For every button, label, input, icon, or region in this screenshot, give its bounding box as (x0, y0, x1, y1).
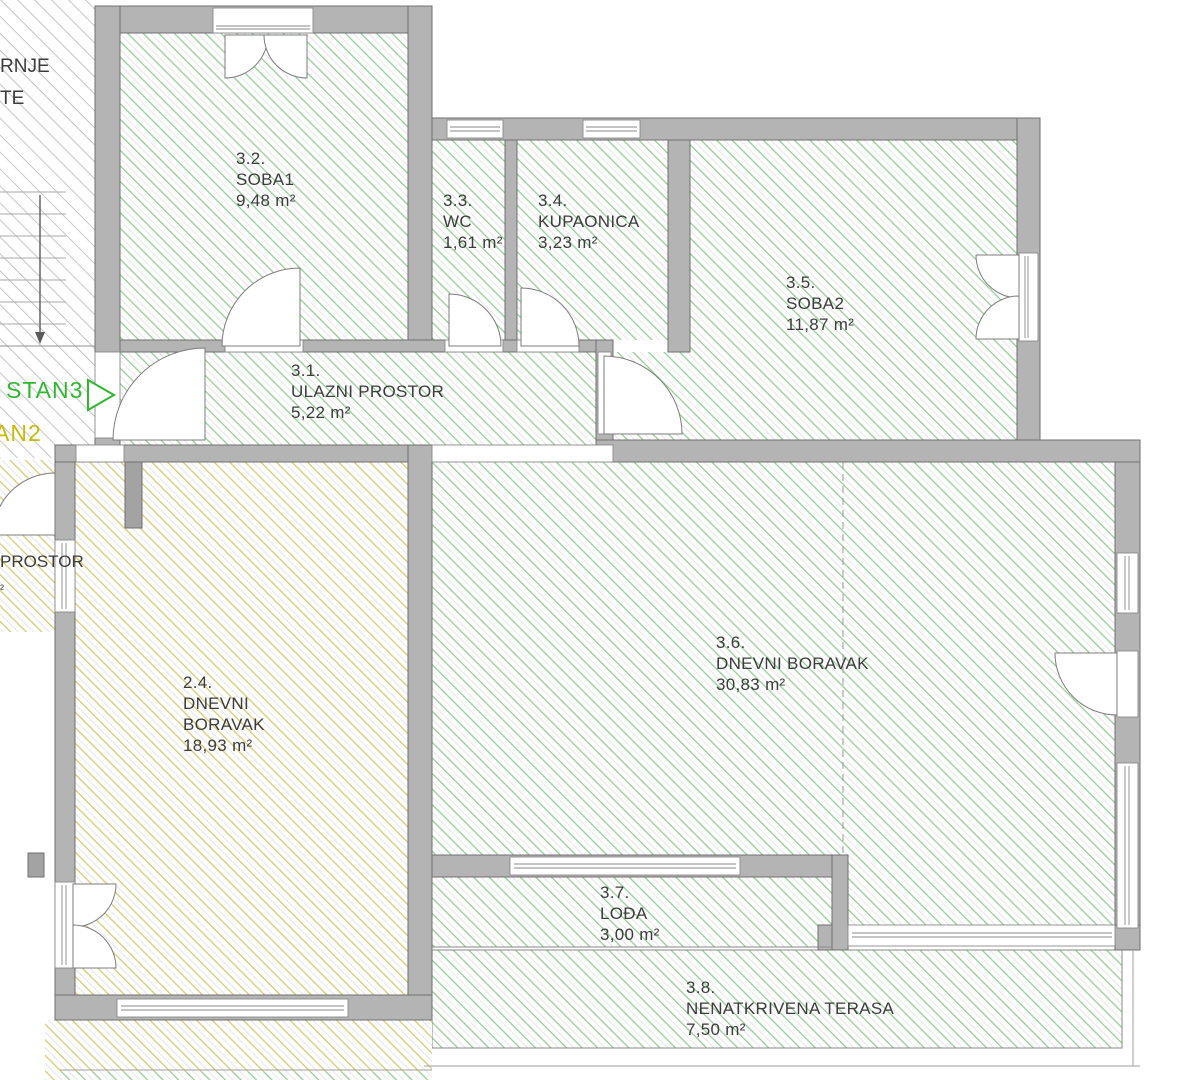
window-lodja (510, 857, 740, 875)
window-wc (447, 120, 503, 138)
stairwell-text-fragment-1: RNJE (0, 56, 50, 78)
stairwell-region (0, 0, 95, 346)
room-area: 1,61 m² (443, 232, 503, 253)
room-label-dnevni-boravak-2: 2.4. DNEVNI BORAVAK 18,93 m² (183, 672, 287, 756)
room-name: DNEVNI BORAVAK (716, 653, 869, 674)
opening-stan2-left (55, 540, 75, 612)
wall-segment (1115, 925, 1140, 950)
french-door-soba2-frame (1019, 253, 1038, 341)
room-number: 3.3. (443, 190, 503, 211)
room-label-dnevni-boravak-3: 3.6. DNEVNI BORAVAK 30,83 m² (716, 632, 869, 695)
floor-plan: RNJE TE STAN3 AN2 PROSTOR ² 3.2. SOBA1 9… (0, 0, 1177, 1080)
room-name: WC (443, 211, 503, 232)
room-number: 3.6. (716, 632, 869, 653)
room-area: 9,48 m² (236, 190, 296, 211)
room-number: 3.7. (600, 882, 660, 903)
stan3-label: STAN3 (6, 377, 83, 404)
window-stan2-south (117, 999, 348, 1017)
room-name: KUPAONICA (538, 211, 640, 232)
opening-stan2 (76, 445, 124, 462)
room-number: 3.1. (291, 360, 444, 381)
room-number: 3.2. (236, 148, 296, 169)
stan2-label-fragment: AN2 (0, 420, 42, 447)
room-name: SOBA1 (236, 169, 296, 190)
stairwell-text-fragment-2: TE (0, 88, 24, 110)
wall-segment (596, 440, 1140, 462)
room-label-soba1: 3.2. SOBA1 9,48 m² (236, 148, 296, 211)
french-door-stan2-frame (55, 882, 75, 968)
wall-segment (408, 6, 432, 352)
room-label-ulazni-prostor: 3.1. ULAZNI PROSTOR 5,22 m² (291, 360, 444, 423)
hatch-regions (0, 0, 1122, 1080)
room-label-soba2: 3.5. SOBA2 11,87 m² (786, 272, 854, 335)
neighbor-area-fragment: ² (0, 582, 4, 596)
window-dnevni3-long (1117, 763, 1138, 928)
room-name: NENATKRIVENA TERASA (686, 998, 894, 1019)
room-number: 3.4. (538, 190, 640, 211)
room-name: SOBA2 (786, 293, 854, 314)
wall-segment (408, 445, 432, 1020)
window-kupaonica (583, 120, 640, 138)
room-area: 7,50 m² (686, 1019, 894, 1040)
wall-segment (432, 118, 1040, 140)
lower-green-strip (60, 1072, 432, 1080)
room-area: 30,83 m² (716, 674, 869, 695)
room-area: 5,22 m² (291, 402, 444, 423)
neighbor-room-fragment: PROSTOR (0, 552, 84, 572)
room-number: 3.8. (686, 977, 894, 998)
door-opening-dnevni3 (1117, 651, 1138, 717)
wall-segment (505, 140, 517, 352)
wall-segment (832, 855, 848, 950)
room-label-terasa: 3.8. NENATKRIVENA TERASA 7,50 m² (686, 977, 894, 1040)
room-area: 18,93 m² (183, 735, 287, 756)
room-area: 3,23 m² (538, 232, 640, 253)
room-number: 3.5. (786, 272, 854, 293)
room-name: DNEVNI BORAVAK (183, 693, 287, 735)
wall-segment (28, 853, 44, 877)
passage-opening (432, 445, 613, 462)
room-area: 11,87 m² (786, 314, 854, 335)
room-area: 3,00 m² (600, 924, 660, 945)
room-label-wc: 3.3. WC 1,61 m² (443, 190, 503, 253)
window-dnevni3-upper (1117, 553, 1138, 613)
wall-stub (125, 462, 142, 528)
room-label-lodja: 3.7. LOĐA 3,00 m² (600, 882, 660, 945)
wall-segment (668, 140, 690, 352)
floor-plan-svg (0, 0, 1177, 1080)
room-label-kupaonica: 3.4. KUPAONICA 3,23 m² (538, 190, 640, 253)
wall-segment (95, 6, 120, 352)
window-dnevni3-south (848, 925, 1115, 946)
stan2-terrace-region (45, 1020, 432, 1080)
room-name: LOĐA (600, 903, 660, 924)
room-number: 2.4. (183, 672, 287, 693)
room-name: ULAZNI PROSTOR (291, 381, 444, 402)
room-region-dnevni-boravak-3-lower (848, 855, 1115, 925)
